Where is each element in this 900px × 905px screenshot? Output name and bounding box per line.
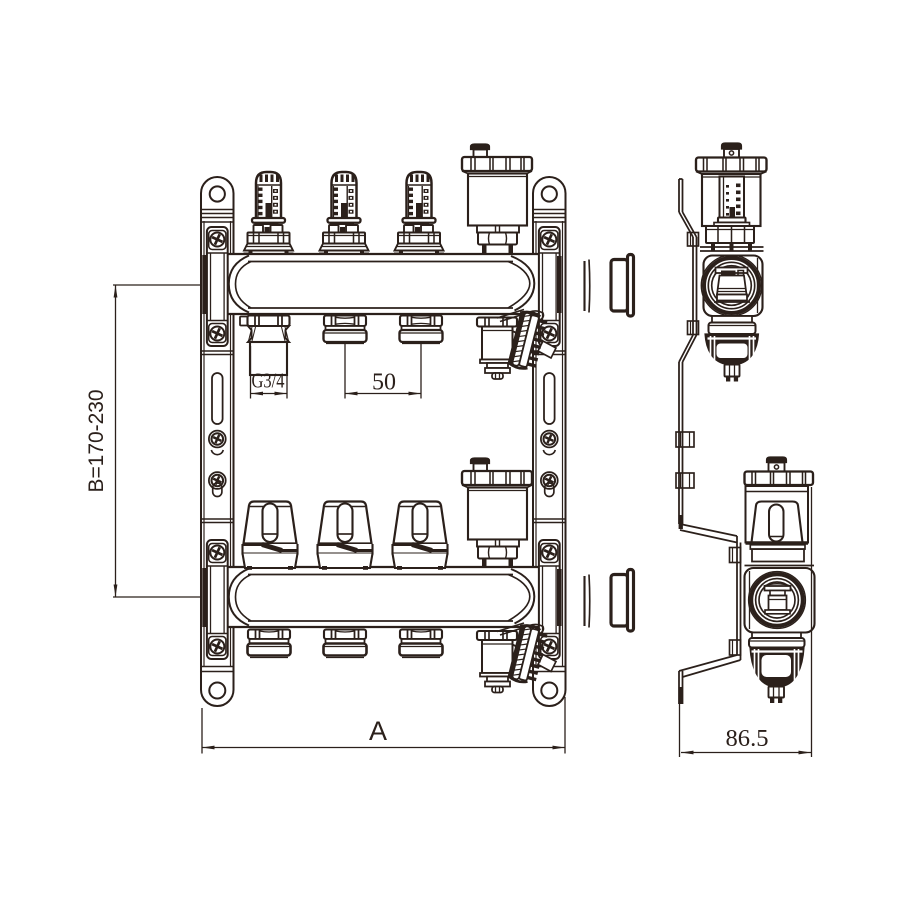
svg-text:B=170-230: B=170-230	[85, 390, 108, 493]
svg-text:50: 50	[372, 370, 396, 396]
svg-text:G3/4: G3/4	[252, 369, 285, 393]
svg-text:86.5: 86.5	[726, 726, 769, 752]
svg-text:A: A	[369, 716, 387, 746]
